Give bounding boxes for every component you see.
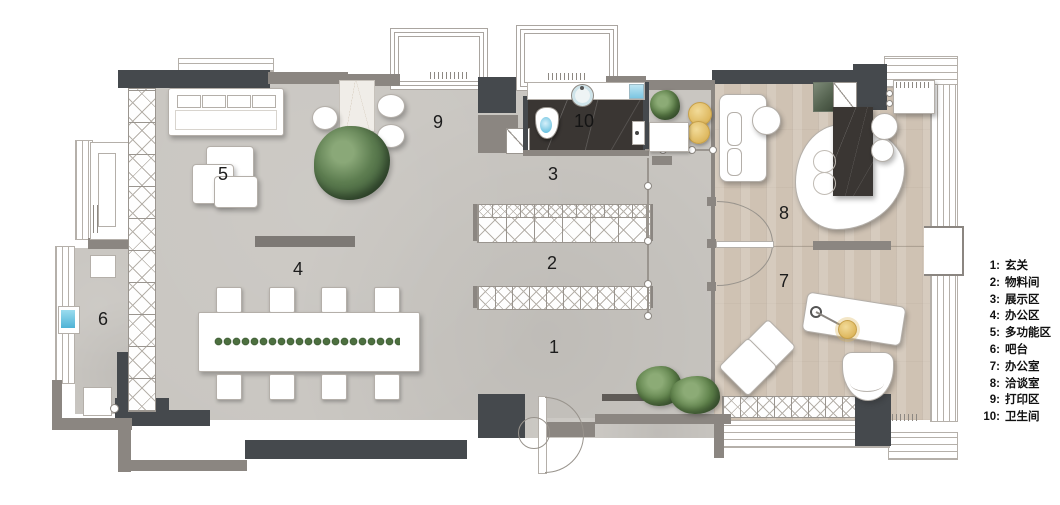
wall-under-plants: [595, 414, 731, 424]
low-table: [649, 122, 689, 152]
stool-gold: [687, 121, 710, 144]
door-hinge: [707, 197, 716, 206]
bar-sink-basin: [61, 310, 75, 328]
column-top-center: [478, 77, 516, 113]
bathroom-door-leaf: [632, 121, 645, 145]
bar-sink: [58, 306, 80, 334]
legend: 1:玄关 2:物料间 3:展示区 4:办公区 5:多功能区 6:吧台 7:办公室…: [976, 258, 1060, 426]
window-bottom-right-corner: [888, 432, 958, 460]
vent-grille: [430, 72, 470, 79]
wall-bathroom-leftside: [523, 96, 528, 152]
round-chair: [871, 139, 894, 162]
room-label-4: 4: [293, 260, 303, 278]
legend-label: 洽谈室: [1005, 378, 1040, 390]
conference-chair: [216, 287, 242, 313]
cabinet-inner-shelf: [98, 153, 116, 227]
wall-bottom-left-step2: [152, 410, 210, 426]
room-label-10: 10: [574, 112, 594, 130]
marble-table-top: [833, 107, 873, 196]
wall-top-left: [118, 70, 270, 88]
sofa-seat-line: [175, 110, 277, 130]
plant: [650, 90, 680, 120]
wall-outline-left-3: [118, 424, 131, 472]
wall-office-bottom-cap: [714, 414, 724, 458]
legend-label: 玄关: [1005, 260, 1028, 272]
meeting-cabinet: [893, 80, 935, 114]
desk-lamp-head: [838, 320, 857, 339]
sofa-cushion: [727, 112, 742, 146]
room-label-6: 6: [98, 310, 108, 328]
glass-node: [644, 237, 652, 245]
cabinet-grille: [896, 82, 930, 88]
vent-grille: [548, 73, 588, 80]
shrub: [670, 376, 720, 414]
room-label-7: 7: [779, 272, 789, 290]
cabinet-knob: [886, 100, 893, 107]
round-chair: [871, 113, 898, 140]
legend-key: 10:: [976, 409, 1000, 426]
wall-outline-left-4: [131, 460, 247, 471]
wall-bottom-long: [245, 440, 467, 459]
bar-cabinet-box: [90, 255, 116, 278]
legend-key: 5:: [976, 325, 1000, 342]
wall-shelf-bar: [255, 236, 355, 247]
cabinet-grille: [93, 205, 98, 233]
legend-key: 8:: [976, 376, 1000, 393]
sink-tap: [580, 86, 584, 90]
column-top-right: [853, 64, 887, 110]
legend-item: 6:吧台: [976, 342, 1060, 359]
sofa-cushion: [177, 95, 201, 108]
chair-arc-line: [850, 375, 884, 392]
legend-label: 办公区: [1005, 310, 1040, 322]
round-chair: [312, 106, 338, 130]
table-plants-row: [214, 336, 400, 347]
glass-node: [644, 182, 652, 190]
conference-chair: [269, 374, 295, 400]
legend-label: 打印区: [1005, 394, 1040, 406]
legend-key: 7:: [976, 359, 1000, 376]
wall-niche-right: [924, 226, 964, 276]
door-hinge: [707, 239, 716, 248]
legend-label: 物料间: [1005, 277, 1040, 289]
legend-key: 1:: [976, 258, 1000, 275]
door-leaf-double: [716, 241, 774, 248]
entry-door-arc-small: [518, 417, 550, 449]
conference-chair: [321, 287, 347, 313]
bathroom-sink: [571, 84, 594, 107]
legend-item: 10:卫生间: [976, 409, 1060, 426]
legend-item: 3:展示区: [976, 292, 1060, 309]
seat-outline: [813, 172, 836, 195]
legend-label: 多功能区: [1005, 327, 1051, 339]
vent-grille: [888, 414, 920, 421]
shelf-hatch-left-strip: [128, 88, 156, 412]
toilet-bowl: [540, 117, 552, 133]
round-chair: [377, 94, 405, 118]
legend-key: 2:: [976, 275, 1000, 292]
bar-stool-dot: [110, 404, 119, 413]
wall-bathroom-bottom: [523, 150, 649, 156]
legend-key: 9:: [976, 392, 1000, 409]
seat-outline: [813, 150, 836, 173]
sofa-cushion: [202, 95, 226, 108]
glass-node: [688, 146, 696, 154]
cabinet-knob: [886, 90, 893, 97]
room-label-3: 3: [548, 165, 558, 183]
legend-key: 6:: [976, 342, 1000, 359]
glass-node: [644, 312, 652, 320]
material-shelf-upper: [477, 217, 651, 243]
legend-label: 办公室: [1005, 361, 1040, 373]
room-label-8: 8: [779, 204, 789, 222]
wall-top-1: [268, 72, 348, 84]
legend-item: 4:办公区: [976, 308, 1060, 325]
conference-chair: [374, 287, 400, 313]
legend-key: 4:: [976, 308, 1000, 325]
legend-item: 2:物料间: [976, 275, 1060, 292]
glass-node: [709, 146, 717, 154]
room-label-2: 2: [547, 254, 557, 272]
room-label-5: 5: [218, 165, 228, 183]
room-label-9: 9: [433, 113, 443, 131]
sofa-multifunction: [168, 88, 284, 136]
door-knob: [635, 131, 639, 135]
floor-plan-image: 1 2 3 4 5 6 7 8 9 10 1:玄关 2:物料间 3:展示区 4:…: [0, 0, 1060, 505]
conference-chair: [269, 287, 295, 313]
legend-item: 8:洽谈室: [976, 376, 1060, 393]
conference-chair: [321, 374, 347, 400]
legend-item: 7:办公室: [976, 359, 1060, 376]
wall-top-4: [646, 80, 714, 90]
legend-item: 9:打印区: [976, 392, 1060, 409]
sofa-cushion: [252, 95, 276, 108]
conference-chair: [374, 374, 400, 400]
legend-label: 卫生间: [1005, 411, 1040, 423]
bathroom-accessory: [629, 84, 644, 99]
sofa-cushion: [227, 95, 251, 108]
legend-key: 3:: [976, 292, 1000, 309]
print-table: [339, 80, 375, 132]
legend-label: 展示区: [1005, 294, 1040, 306]
legend-item: 5:多功能区: [976, 325, 1060, 342]
bar-appliance: [83, 387, 112, 416]
sofa-cushion: [727, 148, 742, 176]
room-label-1: 1: [549, 338, 559, 356]
legend-label: 吧台: [1005, 344, 1028, 356]
door-hinge: [707, 282, 716, 291]
wall-corridor: [711, 80, 715, 396]
conference-chair: [216, 374, 242, 400]
column-bottom-right: [855, 394, 891, 446]
glass-partition-post: [652, 156, 672, 165]
shelf-bar-meeting: [813, 241, 891, 250]
round-side-table: [752, 106, 781, 135]
material-shelf-lower: [477, 286, 651, 310]
window-sill-hatch-office: [722, 396, 856, 418]
planter-box-top: [813, 82, 835, 112]
glass-node: [644, 280, 652, 288]
legend-item: 1:玄关: [976, 258, 1060, 275]
